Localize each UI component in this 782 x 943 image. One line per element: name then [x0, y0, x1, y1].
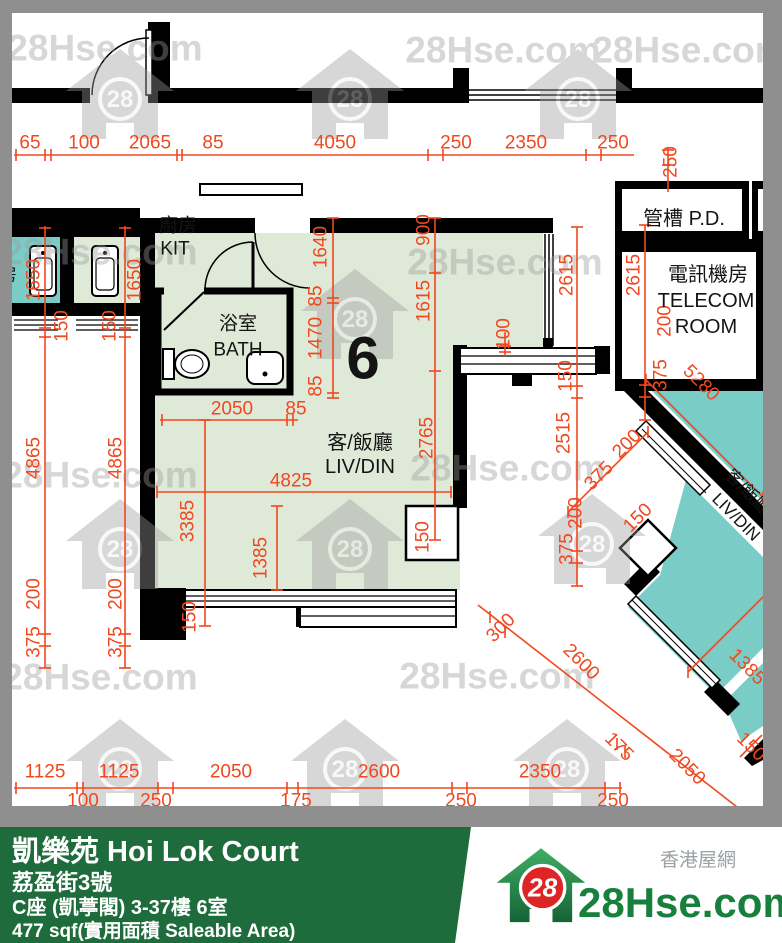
room-label: 電訊機房 — [668, 263, 748, 286]
dimension-label: 85 — [306, 375, 327, 396]
dimension-label: 1125 — [25, 762, 66, 783]
dimension-label: 1615 — [414, 280, 435, 322]
dimension-label: 85 — [285, 399, 306, 420]
entrance-door-leaf — [200, 184, 302, 195]
dimension-label: 150 — [180, 601, 201, 633]
dimension-label: 2615 — [624, 254, 645, 296]
dimension-label: 2065 — [129, 133, 171, 154]
dimension-label: 150 — [52, 310, 73, 342]
dimension-label: 200 — [106, 578, 127, 610]
dimension-label: 4825 — [270, 471, 312, 492]
dimension-label: 1650 — [125, 259, 146, 301]
room-label: BATH — [213, 340, 262, 361]
watermark-text: 28Hse.com — [592, 30, 782, 71]
dimension-label: 4050 — [314, 133, 356, 154]
room-label: 客/飯廳 — [327, 431, 393, 454]
dimension-label: 250 — [661, 146, 682, 178]
dimension-label: 100 — [68, 133, 100, 154]
dimension-label: 100 — [494, 318, 515, 350]
watermark-text: 28Hse.com — [399, 656, 594, 697]
dimension-label: 2350 — [519, 762, 561, 783]
dimension-label: 375 — [106, 626, 127, 658]
room-label: KIT — [160, 239, 190, 260]
bay-window-outer — [300, 607, 456, 627]
room-label: ROOM — [675, 316, 737, 338]
dimension-label: 1385 — [251, 537, 272, 579]
floor-plan-svg: 28 — [0, 0, 782, 943]
room-label: 廚房 — [159, 214, 197, 237]
dimension-label: 2515 — [554, 412, 575, 454]
watermark-text: 28Hse.com — [7, 28, 202, 69]
brand-site-name: 28Hse.com — [578, 879, 782, 926]
frame-left — [0, 0, 12, 806]
dimension-label: 4865 — [24, 437, 45, 479]
dimension-label: 1650 — [24, 259, 45, 301]
dimension-label: 900 — [414, 214, 435, 246]
dimension-label: 2050 — [211, 399, 253, 420]
dimension-label: 200 — [566, 497, 587, 529]
dimension-label: 2350 — [505, 133, 547, 154]
dimension-label: 85 — [202, 133, 223, 154]
footer-estate-name: 凱樂苑 Hoi Lok Court — [12, 834, 299, 868]
room-label: 6 — [346, 325, 379, 392]
dimension-label: 1125 — [99, 762, 140, 783]
footer: 凱樂苑 Hoi Lok Court 荔盈街3號 C座 (凱葶閣) 3-37樓 6… — [0, 827, 782, 943]
dimension-label: 65 — [19, 133, 40, 154]
dimension-label: 250 — [597, 133, 629, 154]
dimension-label: 1470 — [306, 317, 327, 359]
dimension-label: 250 — [440, 133, 472, 154]
dimension-label: 150 — [556, 360, 577, 392]
dimension-label: 375 — [651, 359, 672, 391]
room-label: 管槽 P.D. — [643, 207, 725, 230]
room-label: LIV/DIN — [325, 456, 395, 478]
dimension-label: 150 — [100, 310, 121, 342]
watermark-text: 28Hse.com — [405, 30, 600, 71]
footer-block-floor-flat: C座 (凱葶閣) 3-37樓 6室 — [12, 895, 228, 919]
dimension-label: 3385 — [178, 500, 199, 542]
dimension-label: 2615 — [557, 254, 578, 296]
frame-right — [763, 0, 782, 806]
dimension-label: 2050 — [210, 762, 252, 783]
frame-top — [0, 0, 782, 13]
room-label: 浴室 — [219, 313, 257, 335]
dimension-label: 1640 — [311, 226, 332, 268]
dimension-label: 200 — [24, 578, 45, 610]
footer-street: 荔盈街3號 — [12, 870, 112, 895]
dimension-label: 85 — [306, 285, 327, 306]
toilet-bowl — [175, 350, 209, 378]
bay-window-inner — [185, 590, 456, 607]
brand-site-chinese: 香港屋網 — [660, 849, 736, 871]
dimension-label: 150 — [413, 521, 434, 553]
dimension-label: 375 — [557, 533, 578, 565]
dimension-label: 375 — [24, 626, 45, 658]
frame-separator — [0, 806, 782, 827]
footer-area: 477 sqf(實用面積 Saleable Area) — [12, 919, 295, 942]
room-label: TELECOM — [658, 290, 755, 312]
toilet-tank — [163, 349, 174, 379]
floorplan-page: 28 — [0, 0, 782, 943]
dimension-label: 2600 — [358, 762, 400, 783]
watermark-text: 28Hse.com — [2, 657, 197, 698]
dimension-label: 4865 — [106, 437, 127, 479]
dimension-label: 2765 — [417, 417, 438, 459]
brand-badge-number: 28 — [527, 873, 558, 903]
